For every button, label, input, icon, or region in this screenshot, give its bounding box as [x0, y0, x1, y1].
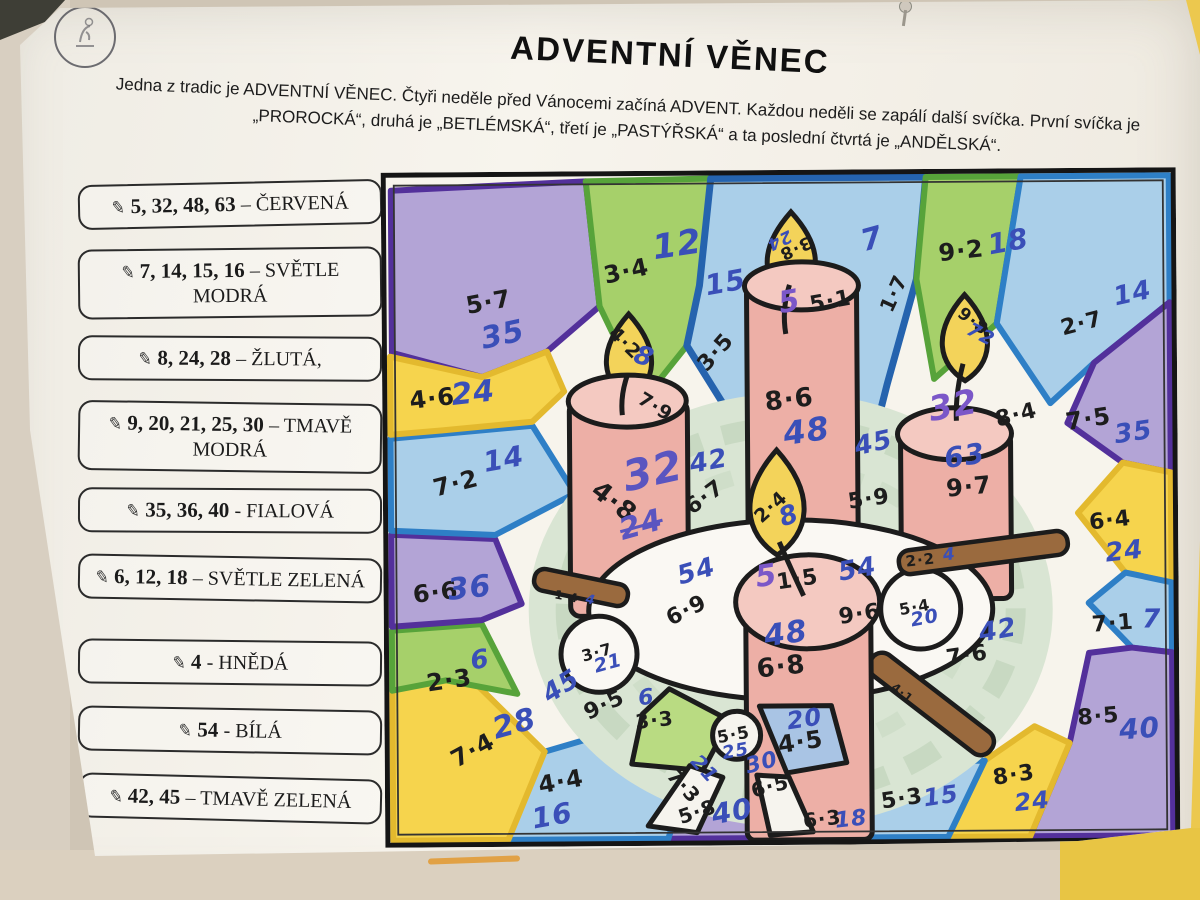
math-problem: 7·5 [1064, 402, 1113, 436]
math-answer: 40 [709, 791, 755, 831]
math-answer: 6 [468, 644, 491, 676]
pencil-icon: ✎ [119, 261, 136, 284]
math-answer: 16 [529, 796, 575, 836]
math-answer: 32 [618, 440, 688, 501]
math-problem: 2·3 [425, 663, 474, 697]
math-answer: 8 [775, 499, 803, 534]
legend-numbers: 8, 24, 28 [157, 346, 236, 370]
math-problem: 6·4 [1088, 506, 1133, 536]
legend-item-7: ✎4 - HNĚDÁ [78, 638, 382, 686]
pencil-icon: ✎ [110, 197, 127, 220]
math-answer: 6 [637, 685, 656, 712]
math-problem: 5·9 [846, 484, 891, 515]
math-problem: 2·2 [905, 549, 936, 570]
math-problem: 4·1 [888, 680, 916, 706]
page-title: ADVENTNÍ VĚNEC [389, 23, 950, 86]
math-answer: 42 [687, 443, 730, 479]
legend-item-6: ✎6, 12, 18 – SVĚTLE ZELENÁ [78, 553, 383, 603]
math-answer: 12 [650, 221, 705, 268]
legend-item-3: ✎8, 24, 28 – ŽLUTÁ, [78, 335, 382, 382]
math-answer: 45 [852, 425, 896, 463]
math-answer: 54 [674, 552, 719, 592]
math-problem: 5·3 [879, 784, 924, 815]
math-answer: 7 [1142, 604, 1161, 634]
math-answer: 4 [942, 544, 957, 565]
legend-color-name: – SVĚTLE ZELENÁ [193, 567, 366, 592]
legend-item-8: ✎54 - BÍLÁ [78, 705, 383, 755]
legend-color-name: – ŽLUTÁ, [236, 348, 322, 370]
legend-item-1: ✎5, 32, 48, 63 – ČERVENÁ [78, 179, 383, 230]
math-problem: 4·4 [536, 764, 586, 800]
math-answer: 45 [537, 664, 585, 710]
pencil-icon: ✎ [93, 566, 110, 589]
push-pin-icon [893, 0, 915, 30]
math-answer: 5 [753, 557, 780, 595]
legend-numbers: 6, 12, 18 [114, 564, 193, 589]
math-problem: 6·8 [755, 649, 807, 684]
legend-color-name: – ČERVENÁ [241, 192, 349, 216]
pencil-icon: ✎ [137, 348, 154, 371]
pencil-icon: ✎ [170, 652, 187, 675]
math-answer: 20 [909, 605, 941, 632]
math-problem: 4·6 [408, 382, 456, 415]
math-answer: 35 [478, 313, 528, 357]
math-problem: 7·4 [446, 727, 499, 773]
math-answer: 28 [489, 701, 540, 746]
math-answer: 63 [942, 436, 987, 475]
handwritten-math-labels: 5·7353·4123·5151·779·2182·7147·5356·4247… [381, 167, 1181, 848]
math-problem: 3·5 [693, 328, 740, 376]
pencil-icon: ✎ [107, 412, 124, 435]
math-answer: 32 [925, 382, 981, 430]
legend-color-name: - HNĚDÁ [207, 652, 289, 675]
math-answer: 18 [985, 221, 1031, 261]
legend-item-9: ✎42, 45 – TMAVĚ ZELENÁ [77, 772, 382, 824]
legend-color-name: – TMAVĚ ZELENÁ [185, 787, 351, 813]
math-answer: 14 [1111, 275, 1155, 313]
legend-item-5: ✎35, 36, 40 - FIALOVÁ [78, 487, 382, 534]
math-answer: 5 [776, 283, 804, 321]
math-problem: 9·2 [937, 234, 985, 267]
math-problem: 5·7 [464, 284, 514, 320]
legend-numbers: 7, 14, 15, 16 [140, 258, 250, 283]
math-problem: 5·1 [808, 286, 854, 318]
math-answer: 54 [836, 551, 879, 587]
math-problem: 1·5 [775, 564, 820, 595]
math-problem: 9·5 [580, 685, 629, 726]
pencil-icon: ✎ [107, 785, 125, 808]
math-answer: 24 [450, 373, 497, 413]
worksheet-photo: ADVENTNÍ VĚNEC Jedna z tradic je ADVENTN… [0, 0, 1200, 900]
math-problem: 9·7 [945, 471, 993, 503]
legend-numbers: 35, 36, 40 [145, 498, 234, 522]
math-answer: 24 [1013, 785, 1051, 817]
math-answer: 7 [857, 220, 887, 260]
math-answer: 15 [702, 262, 748, 302]
math-problem: 9·6 [837, 599, 882, 630]
worksheet-paper: ADVENTNÍ VĚNEC Jedna z tradic je ADVENTN… [0, 0, 1200, 900]
math-problem: 7·2 [430, 464, 481, 502]
math-answer: 48 [781, 409, 833, 453]
legend-numbers: 5, 32, 48, 63 [130, 192, 241, 218]
math-problem: 8·5 [1077, 703, 1121, 731]
legend-numbers: 42, 45 [128, 784, 186, 809]
math-problem: 3·4 [601, 253, 651, 290]
math-answer: 18 [834, 805, 869, 833]
math-problem: 8·4 [993, 398, 1040, 433]
color-legend: ✎5, 32, 48, 63 – ČERVENÁ✎7, 14, 15, 16 –… [78, 0, 370, 900]
math-answer: 15 [921, 779, 960, 812]
math-answer: 48 [762, 613, 810, 654]
math-problem: 7·1 [1091, 610, 1135, 638]
legend-item-4: ✎9, 20, 21, 25, 30 – TMAVĚ MODRÁ [78, 400, 383, 474]
math-problem: 2·7 [1058, 307, 1105, 342]
math-problem: 7·9 [634, 388, 677, 426]
math-problem: 6·7 [681, 475, 730, 520]
pencil-icon: ✎ [125, 500, 142, 523]
pencil-icon: ✎ [176, 719, 193, 742]
math-answer: 20 [785, 702, 824, 735]
math-answer: 42 [976, 612, 1019, 648]
legend-color-name: - BÍLÁ [223, 720, 282, 743]
legend-numbers: 4 [191, 650, 207, 674]
legend-item-2: ✎7, 14, 15, 16 – SVĚTLE MODRÁ [78, 246, 383, 319]
advent-wreath-picture: 5·7353·4123·5151·779·2182·7147·5356·4247… [381, 167, 1181, 848]
legend-numbers: 9, 20, 21, 25, 30 [127, 411, 269, 437]
math-answer: 4 [584, 592, 597, 609]
legend-numbers: 54 [197, 717, 224, 741]
math-answer: 36 [446, 568, 493, 608]
math-problem: 8·3 [991, 760, 1036, 791]
math-answer: 14 [481, 439, 527, 479]
table-surface [0, 850, 1200, 900]
math-problem: 6·9 [662, 590, 711, 631]
math-problem: 1·4 [553, 587, 579, 605]
legend-color-name: - FIALOVÁ [234, 500, 334, 523]
math-answer: 24 [1104, 535, 1145, 569]
math-answer: 40 [1118, 710, 1161, 746]
math-problem: 1·7 [875, 271, 913, 316]
math-answer: 35 [1112, 415, 1154, 450]
